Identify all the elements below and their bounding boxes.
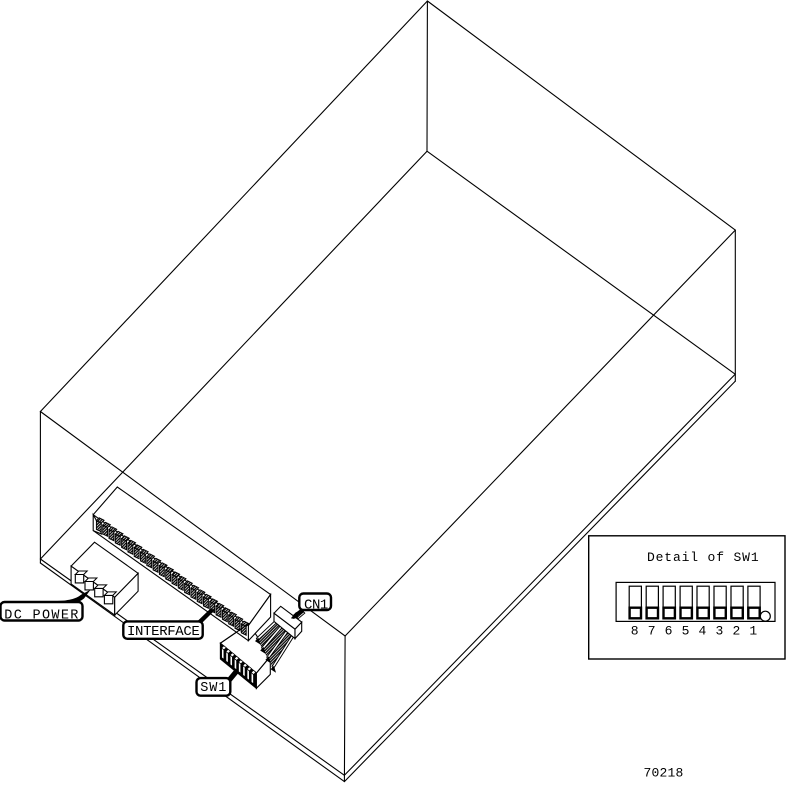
svg-text:SW1: SW1 [200, 681, 227, 696]
svg-text:70218: 70218 [644, 766, 684, 781]
svg-text:CN1: CN1 [304, 597, 328, 613]
svg-text:5: 5 [682, 624, 690, 639]
svg-text:7: 7 [648, 624, 656, 639]
svg-text:1: 1 [749, 624, 757, 639]
svg-text:3: 3 [715, 624, 723, 639]
svg-text:6: 6 [665, 624, 673, 639]
svg-text:DC POWER: DC POWER [4, 608, 79, 623]
svg-text:INTERFACE: INTERFACE [127, 624, 199, 640]
svg-text:Detail of SW1: Detail of SW1 [647, 550, 759, 565]
svg-text:4: 4 [698, 624, 706, 639]
svg-text:8: 8 [631, 624, 639, 639]
svg-text:2: 2 [732, 624, 740, 639]
